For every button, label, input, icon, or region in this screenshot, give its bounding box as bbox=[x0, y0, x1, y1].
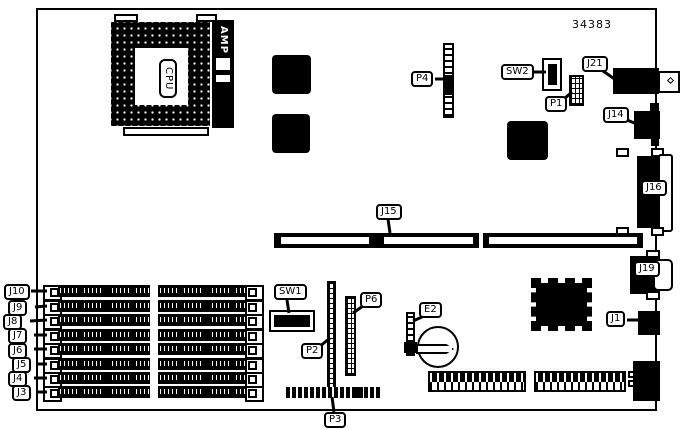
callout-p2: P2 bbox=[301, 343, 323, 359]
callout-e2: E2 bbox=[419, 302, 442, 318]
callout-leader-lines bbox=[0, 0, 681, 430]
callout-j10: J10 bbox=[4, 284, 30, 300]
callout-p3: P3 bbox=[324, 412, 346, 428]
callout-p4: P4 bbox=[411, 71, 433, 87]
callout-j21: J21 bbox=[582, 56, 608, 72]
callout-p1: P1 bbox=[545, 96, 567, 112]
callout-j16: J16 bbox=[641, 180, 667, 196]
motherboard-diagram: 34383 CPU AMP bbox=[0, 0, 681, 430]
callout-j15: J15 bbox=[376, 204, 402, 220]
callout-sw2: SW2 bbox=[501, 64, 534, 80]
callout-j3: J3 bbox=[12, 385, 31, 401]
callout-j1: J1 bbox=[606, 311, 625, 327]
callout-p6: P6 bbox=[360, 292, 382, 308]
callout-sw1: SW1 bbox=[274, 284, 307, 300]
callout-j19: J19 bbox=[634, 261, 660, 277]
callout-j14: J14 bbox=[603, 107, 629, 123]
callout-j7: J7 bbox=[8, 328, 27, 344]
